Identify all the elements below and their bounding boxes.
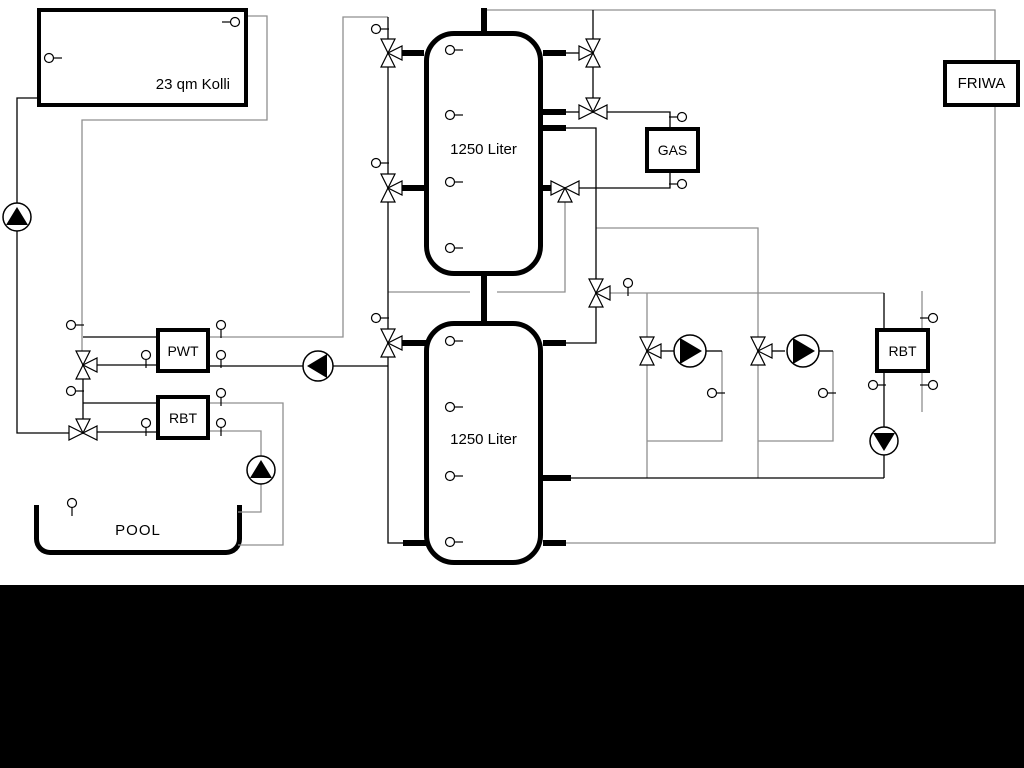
valve-triangle bbox=[76, 365, 90, 379]
valve-triangle bbox=[388, 181, 402, 195]
temperature-sensor bbox=[372, 314, 390, 323]
valve-solar-tank1-top bbox=[381, 39, 402, 67]
pump-body bbox=[674, 335, 706, 367]
pump-body bbox=[3, 203, 31, 231]
pump-direction-arrow-icon bbox=[250, 460, 272, 478]
pump-direction-arrow-icon bbox=[307, 354, 327, 378]
pump-rbt-heating bbox=[870, 427, 898, 455]
valve-triangle bbox=[388, 46, 402, 60]
valve-triangle bbox=[751, 351, 765, 365]
temperature-sensor bbox=[920, 314, 938, 323]
friwa-station-label: FRIWA bbox=[958, 75, 1006, 92]
temperature-sensor bbox=[217, 389, 226, 407]
pool-basin: POOL bbox=[34, 505, 242, 555]
valve-triangle bbox=[579, 46, 593, 60]
buffer-tank-upper-label: 1250 Liter bbox=[429, 141, 538, 158]
pwt-heat-exchanger-label: PWT bbox=[167, 343, 198, 359]
valve-triangle bbox=[647, 344, 661, 358]
sensor-bulb-icon bbox=[708, 389, 717, 398]
pipe-route bbox=[647, 351, 722, 441]
pipe-route bbox=[210, 431, 261, 512]
sensor-bulb-icon bbox=[217, 389, 226, 398]
pipe-line bbox=[579, 173, 670, 188]
sensor-bulb-icon bbox=[217, 351, 226, 360]
valve-triangle bbox=[586, 39, 600, 53]
pump-body bbox=[247, 456, 275, 484]
temperature-sensor bbox=[217, 419, 226, 437]
solar-collector-label: 23 qm Kolli bbox=[156, 76, 230, 93]
pipe-route bbox=[596, 228, 758, 337]
temperature-sensor bbox=[67, 387, 85, 396]
pump-pool bbox=[247, 456, 275, 484]
valve-triangle bbox=[76, 351, 90, 365]
sensor-bulb-icon bbox=[624, 279, 633, 288]
valve-tank1-right-top bbox=[579, 39, 600, 67]
valve-triangle bbox=[76, 419, 90, 433]
temperature-sensor bbox=[217, 321, 226, 339]
pump-direction-arrow-icon bbox=[6, 207, 28, 225]
valve-heating-supply-selector bbox=[589, 279, 610, 307]
temperature-sensor bbox=[142, 419, 151, 437]
sensor-bulb-icon bbox=[819, 389, 828, 398]
valve-gas-supply bbox=[579, 98, 607, 119]
valve-triangle bbox=[388, 336, 402, 350]
rbt-heating-heat-exchanger-box: RBT bbox=[875, 328, 930, 373]
pipe-line bbox=[607, 112, 670, 127]
pipe-line bbox=[565, 307, 596, 343]
valve-triangle bbox=[69, 426, 83, 440]
pump-solar bbox=[3, 203, 31, 231]
temperature-sensor bbox=[67, 321, 85, 330]
valve-triangle bbox=[589, 293, 603, 307]
valve-triangle bbox=[586, 53, 600, 67]
sensor-bulb-icon bbox=[929, 314, 938, 323]
temperature-sensor bbox=[819, 389, 837, 398]
schematic-canvas: 23 qm Kolli 1250 Liter 1250 Liter GAS FR… bbox=[0, 0, 1024, 768]
temperature-sensor bbox=[372, 25, 390, 34]
valve-triangle bbox=[751, 337, 765, 351]
sensor-bulb-icon bbox=[678, 180, 687, 189]
sensor-bulb-icon bbox=[372, 159, 381, 168]
sensor-bulb-icon bbox=[67, 387, 76, 396]
valve-triangle bbox=[83, 426, 97, 440]
valve-triangle bbox=[586, 98, 600, 112]
pipe-route bbox=[484, 10, 995, 60]
valve-pool-pwt bbox=[76, 351, 97, 379]
pump-pwt bbox=[303, 351, 333, 381]
temperature-sensor bbox=[869, 381, 887, 390]
valve-triangle bbox=[381, 53, 395, 67]
pipe-line bbox=[17, 98, 69, 433]
buffer-tank-lower-label: 1250 Liter bbox=[429, 431, 538, 448]
pump-body bbox=[303, 351, 333, 381]
valve-triangle bbox=[565, 181, 579, 195]
bottom-black-band bbox=[0, 585, 1024, 768]
pump-direction-arrow-icon bbox=[680, 338, 702, 364]
rbt-pool-heat-exchanger-label: RBT bbox=[169, 410, 197, 426]
pump-body bbox=[787, 335, 819, 367]
valve-triangle bbox=[640, 337, 654, 351]
sensor-bulb-icon bbox=[142, 351, 151, 360]
valve-triangle bbox=[551, 181, 565, 195]
valve-solar-tank2 bbox=[381, 329, 402, 357]
sensor-bulb-icon bbox=[217, 419, 226, 428]
sensor-bulb-icon bbox=[67, 321, 76, 330]
sensor-bulb-icon bbox=[372, 25, 381, 34]
temperature-sensor bbox=[920, 381, 938, 390]
pump-heating-circuit-1 bbox=[674, 335, 706, 367]
temperature-sensor bbox=[669, 180, 687, 189]
temperature-sensor bbox=[669, 113, 687, 122]
valve-gas-return bbox=[551, 181, 579, 202]
gas-boiler-label: GAS bbox=[658, 142, 688, 158]
valve-triangle bbox=[381, 343, 395, 357]
sensor-bulb-icon bbox=[372, 314, 381, 323]
sensor-bulb-icon bbox=[678, 113, 687, 122]
sensor-bulb-icon bbox=[929, 381, 938, 390]
valve-pool-rbt bbox=[69, 419, 97, 440]
valve-triangle bbox=[558, 188, 572, 202]
valve-triangle bbox=[83, 358, 97, 372]
sensor-bulb-icon bbox=[142, 419, 151, 428]
rbt-heating-heat-exchanger-label: RBT bbox=[889, 343, 917, 359]
rbt-pool-heat-exchanger-box: RBT bbox=[156, 395, 210, 440]
pump-direction-arrow-icon bbox=[793, 338, 815, 364]
valve-triangle bbox=[758, 344, 772, 358]
pipe-line bbox=[566, 128, 596, 279]
sensor-bulb-icon bbox=[217, 321, 226, 330]
solar-collector-box: 23 qm Kolli bbox=[37, 8, 248, 107]
valve-triangle bbox=[579, 105, 593, 119]
valve-triangle bbox=[381, 174, 395, 188]
temperature-sensor bbox=[142, 351, 151, 369]
friwa-station-box: FRIWA bbox=[943, 60, 1020, 107]
pipe-route bbox=[566, 107, 995, 543]
pump-direction-arrow-icon bbox=[873, 433, 895, 451]
valve-heating-circuit-2 bbox=[751, 337, 772, 365]
buffer-tank-lower: 1250 Liter bbox=[424, 321, 543, 565]
valve-triangle bbox=[381, 188, 395, 202]
temperature-sensor bbox=[372, 159, 390, 168]
gas-boiler-box: GAS bbox=[645, 127, 700, 173]
valve-heating-circuit-1 bbox=[640, 337, 661, 365]
sensor-bulb-icon bbox=[869, 381, 878, 390]
pipe-line bbox=[388, 357, 404, 543]
valve-solar-tank1-mid bbox=[381, 174, 402, 202]
temperature-sensor bbox=[624, 279, 633, 297]
valve-triangle bbox=[381, 329, 395, 343]
temperature-sensor bbox=[217, 351, 226, 369]
pipe-route bbox=[758, 351, 833, 441]
pump-heating-circuit-2 bbox=[787, 335, 819, 367]
pool-label: POOL bbox=[39, 522, 237, 539]
valve-triangle bbox=[596, 286, 610, 300]
valve-triangle bbox=[381, 39, 395, 53]
pump-body bbox=[870, 427, 898, 455]
temperature-sensor bbox=[708, 389, 726, 398]
pwt-heat-exchanger-box: PWT bbox=[156, 328, 210, 373]
valve-triangle bbox=[593, 105, 607, 119]
valve-triangle bbox=[589, 279, 603, 293]
buffer-tank-upper: 1250 Liter bbox=[424, 31, 543, 276]
valve-triangle bbox=[640, 351, 654, 365]
